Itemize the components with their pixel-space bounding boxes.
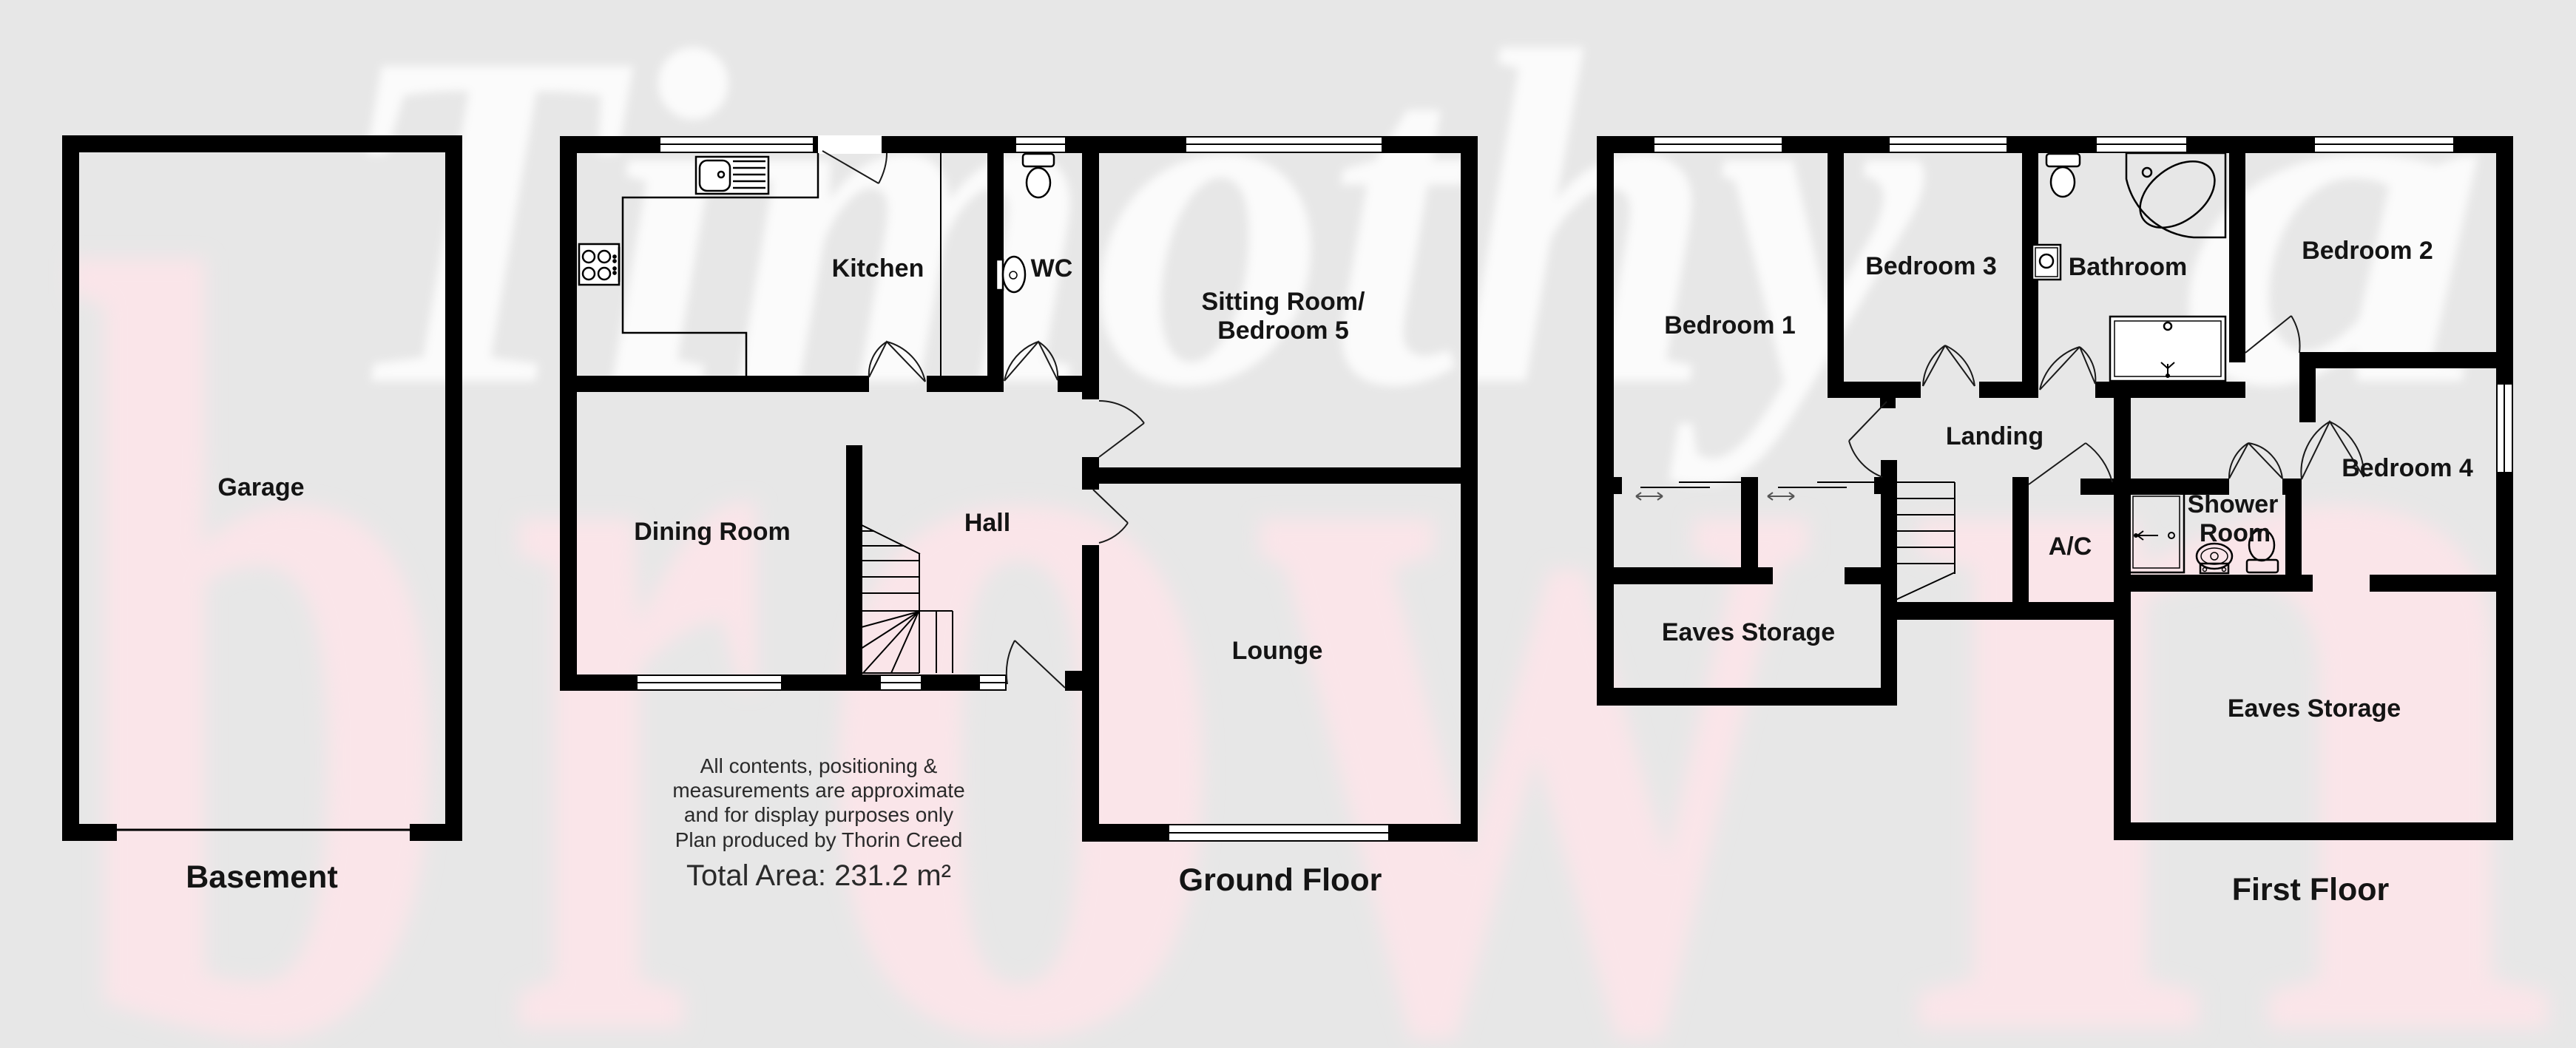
svg-text:Bedroom 1: Bedroom 1	[1664, 311, 1796, 339]
svg-text:Dining Room: Dining Room	[634, 518, 791, 546]
svg-text:Bedroom 2: Bedroom 2	[2302, 237, 2433, 265]
svg-text:Landing: Landing	[1946, 422, 2043, 450]
svg-text:A/C: A/C	[2049, 533, 2092, 561]
svg-text:Garage: Garage	[217, 473, 304, 501]
svg-text:First Floor: First Floor	[2232, 872, 2390, 907]
svg-text:Eaves Storage: Eaves Storage	[1662, 618, 1835, 646]
svg-text:Sitting Room/: Sitting Room/	[1202, 288, 1366, 316]
svg-text:Hall: Hall	[964, 509, 1010, 537]
svg-text:Kitchen: Kitchen	[832, 254, 924, 283]
svg-text:Total Area: 231.2 m²: Total Area: 231.2 m²	[686, 859, 951, 892]
svg-text:Plan produced by Thorin Creed: Plan produced by Thorin Creed	[675, 828, 963, 851]
svg-text:All contents, positioning &: All contents, positioning &	[700, 754, 938, 777]
svg-text:Room: Room	[2200, 519, 2271, 547]
svg-text:Shower: Shower	[2188, 490, 2279, 518]
svg-text:Eaves Storage: Eaves Storage	[2228, 694, 2401, 723]
svg-text:Bedroom 3: Bedroom 3	[1865, 252, 1997, 280]
svg-text:Bedroom 5: Bedroom 5	[1217, 317, 1349, 345]
svg-text:WC: WC	[1031, 254, 1073, 283]
svg-text:Ground Floor: Ground Floor	[1179, 862, 1382, 898]
svg-text:measurements are approximate: measurements are approximate	[672, 779, 964, 802]
svg-text:and for display purposes only: and for display purposes only	[684, 803, 953, 826]
svg-text:Bathroom: Bathroom	[2069, 253, 2188, 281]
svg-text:Bedroom 4: Bedroom 4	[2342, 454, 2473, 482]
svg-text:Basement: Basement	[186, 859, 338, 895]
svg-text:Lounge: Lounge	[1232, 637, 1323, 665]
